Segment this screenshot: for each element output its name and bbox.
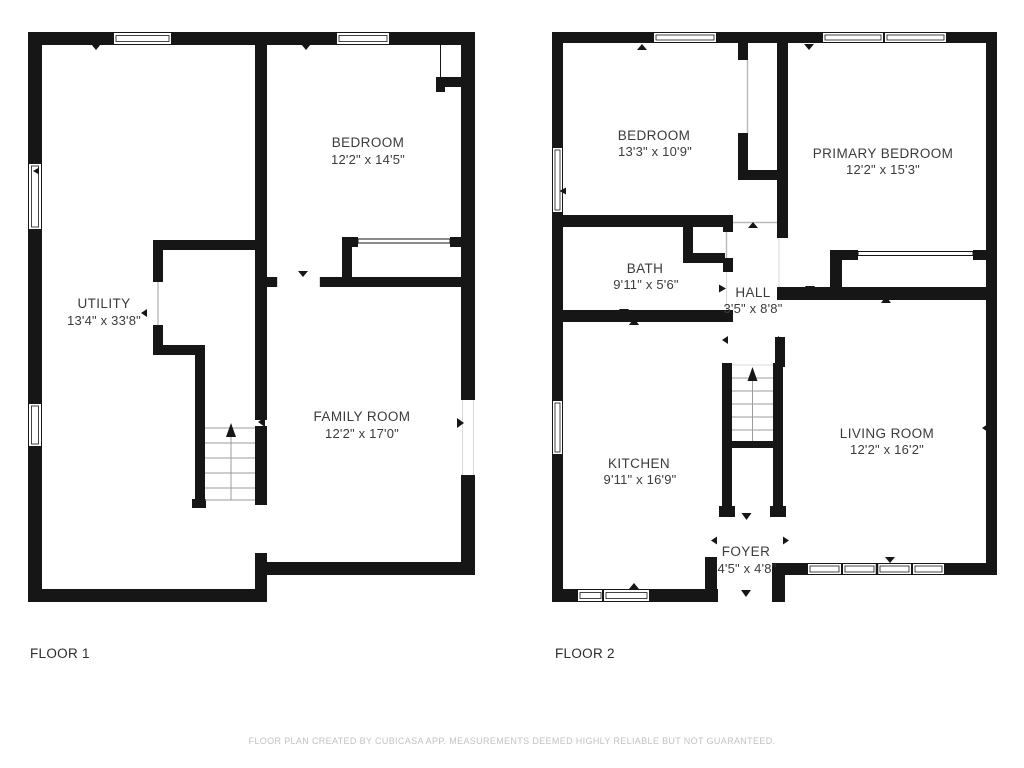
floor2-label: FLOOR 2 (555, 646, 615, 661)
room-label-bedroom: BEDROOM (332, 135, 405, 150)
window-icon (808, 563, 945, 575)
floor2-doors (727, 60, 974, 365)
floor1-plan: BEDROOM 12'2" x 14'5" UTILITY 13'4" x 33… (28, 32, 475, 661)
closet-slider-icon (858, 252, 973, 256)
room-label-utility: UTILITY (77, 296, 130, 311)
room-dims-foyer: 4'5" x 4'8" (717, 561, 776, 576)
window-icon (29, 404, 42, 447)
window-icon (114, 33, 172, 45)
room-label-foyer: FOYER (722, 544, 771, 559)
closet-slider-icon (358, 239, 450, 243)
floor1-stairs (205, 423, 255, 500)
room-label-hall: HALL (735, 285, 770, 300)
floor2-plan: BEDROOM 13'3" x 10'9" PRIMARY BEDROOM 12… (552, 32, 997, 661)
floor2-stairs (732, 367, 773, 441)
room-label-bedroom2: BEDROOM (618, 128, 691, 143)
window-icon (823, 32, 947, 43)
floor-plan-page: BEDROOM 12'2" x 14'5" UTILITY 13'4" x 33… (0, 0, 1024, 768)
room-dims-bedroom2: 13'3" x 10'9" (618, 144, 692, 159)
stairs-up-arrow-icon (226, 423, 236, 437)
window-icon (553, 148, 563, 213)
floor1-label: FLOOR 1 (30, 646, 90, 661)
stairs-up-arrow-icon (748, 367, 758, 381)
floor-plan-canvas: BEDROOM 12'2" x 14'5" UTILITY 13'4" x 33… (0, 0, 1024, 768)
window-icon (29, 164, 42, 230)
room-dims-utility: 13'4" x 33'8" (67, 313, 141, 328)
window-icon (654, 33, 717, 43)
room-dims-living-room: 12'2" x 16'2" (850, 442, 924, 457)
room-dims-kitchen: 9'11" x 16'9" (604, 472, 677, 487)
room-dims-bedroom: 12'2" x 14'5" (331, 152, 405, 167)
window-icon (337, 33, 390, 45)
disclaimer-text: FLOOR PLAN CREATED BY CUBICASA APP. MEAS… (249, 736, 776, 746)
window-icon (578, 589, 650, 602)
room-label-family-room: FAMILY ROOM (314, 409, 411, 424)
room-dims-primary-bedroom: 12'2" x 15'3" (846, 162, 920, 177)
room-label-kitchen: KITCHEN (608, 456, 670, 471)
room-dims-bath: 9'11" x 5'6" (613, 277, 679, 292)
room-label-living-room: LIVING ROOM (840, 426, 934, 441)
patio-opening (461, 400, 475, 475)
room-dims-family-room: 12'2" x 17'0" (325, 426, 399, 441)
floor1-room-labels: BEDROOM 12'2" x 14'5" UTILITY 13'4" x 33… (67, 135, 410, 441)
floor1-chimney (441, 45, 462, 78)
room-label-primary-bedroom: PRIMARY BEDROOM (813, 146, 954, 161)
room-label-bath: BATH (627, 261, 664, 276)
floor2-walls (552, 32, 997, 602)
window-icon (553, 401, 563, 455)
room-dims-hall: 3'5" x 8'8" (723, 301, 782, 316)
